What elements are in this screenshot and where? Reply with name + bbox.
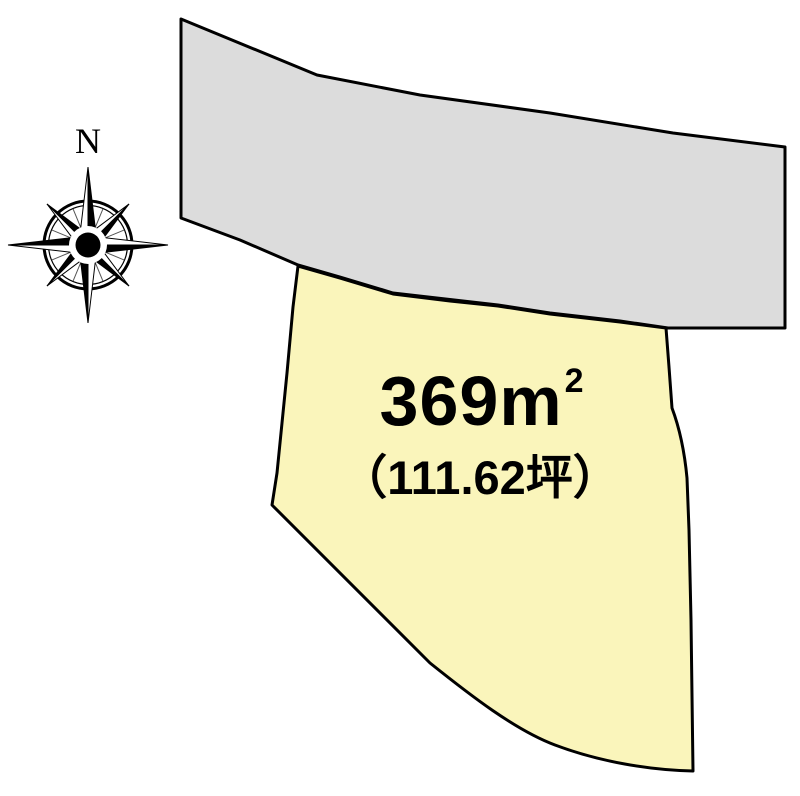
- parcel-area-tsubo-label: （111.62坪）: [340, 454, 620, 501]
- compass-hub-dot: [76, 233, 101, 258]
- compass-rose: [8, 167, 168, 323]
- parcel-area-value: 369: [380, 366, 500, 436]
- parcel-shape: [272, 266, 693, 771]
- parcel-area-label: 369m2: [380, 366, 585, 436]
- parcel-area-unit: m: [499, 366, 562, 436]
- site-plan-diagram: N 369m2 （111.62坪）: [0, 0, 800, 796]
- parcel-area-exponent: 2: [565, 364, 585, 398]
- compass-north-label: N: [75, 123, 101, 159]
- road-shape: [181, 19, 785, 328]
